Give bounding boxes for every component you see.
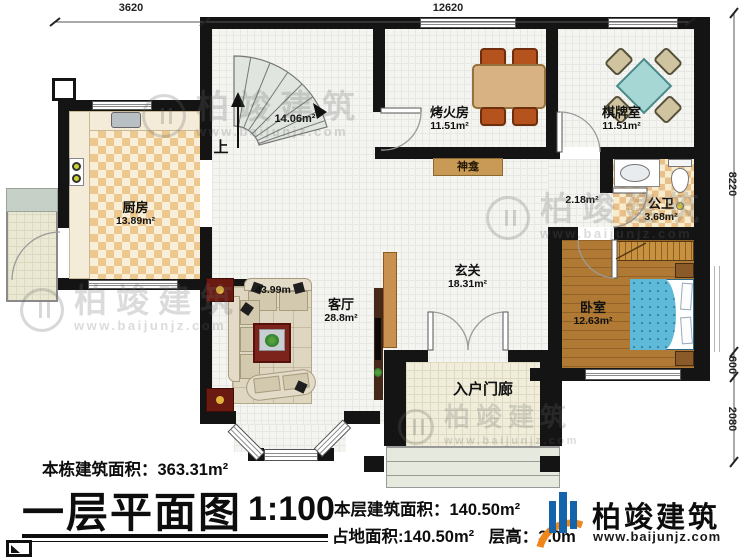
room-name: 烤火房 (402, 106, 497, 121)
table-plant (265, 334, 279, 347)
room-area: 11.51m² (402, 121, 497, 133)
window-fireroom-top (420, 18, 516, 28)
label-entry-porch: 入户门廊 (428, 382, 538, 399)
bay-pillar-bottomright (318, 448, 334, 461)
dining-chair (512, 107, 538, 126)
plan-title: 一层平面图 (22, 479, 242, 540)
nightstand (675, 351, 694, 366)
wall-fireroom-left (373, 17, 385, 112)
dim-top-left: 3620 (108, 2, 154, 14)
toilet-tank (668, 159, 692, 167)
building-total-area: 本栋建筑面积：363.31m² (42, 456, 228, 480)
sill-line (714, 266, 715, 352)
label-chess-room: 棋牌室 11.51m² (574, 106, 669, 132)
floor-area-text: 本层建筑面积：140.50m² (334, 496, 520, 520)
sill-line (719, 266, 720, 352)
stove-burner (72, 174, 81, 183)
window-kitchen-bottom (88, 280, 178, 289)
sofa-back-left (228, 296, 240, 382)
entry-steps (386, 446, 560, 488)
kitchen-counter-left (69, 111, 90, 279)
room-area: 11.51m² (574, 121, 669, 133)
room-name: 入户门廊 (428, 382, 538, 399)
wall-fire-chess-divider (546, 29, 558, 147)
sofa-cushion (253, 375, 281, 393)
dim-right-8220: 8220 (726, 164, 738, 204)
plan-scale: 1:100 (248, 490, 335, 529)
nightstand (675, 263, 694, 278)
wall-chess-bottom (600, 147, 694, 159)
bed-duvet (630, 279, 678, 350)
dim-top-right: 12620 (420, 2, 476, 14)
label-living-room: 客厅 28.8m² (295, 298, 387, 324)
kitchen-sink (111, 112, 141, 128)
stair-direction: 上 (206, 140, 236, 157)
room-area: 12.63m² (560, 316, 626, 328)
porch-pillar-left (384, 350, 406, 446)
wall-bath-left (600, 147, 613, 193)
room-area: 13.89m² (88, 216, 183, 228)
floor-plan-canvas: 厨房 13.89m² 14.06m² 上 烤火房 11.51m² 棋牌室 11.… (0, 0, 750, 560)
cabinet-knob (216, 396, 224, 404)
floor-entry-porch (406, 362, 540, 446)
room-name: 客厅 (295, 298, 387, 313)
room-name: 公卫 (622, 197, 700, 212)
brand-url: www.baijunjz.com (593, 529, 721, 544)
label-shrine: 神龛 (433, 161, 503, 173)
north-triangle (11, 545, 20, 553)
wardrobe (612, 241, 694, 261)
label-kitchen: 厨房 13.89m² (88, 201, 183, 227)
label-bedroom: 卧室 12.63m² (560, 301, 626, 327)
dim-value: 600 (726, 356, 738, 374)
label-hallway: 2.18m² (552, 195, 612, 207)
bedroom-doorway (578, 227, 614, 240)
porch-pillar-right (540, 350, 562, 446)
dim-value: 12620 (433, 2, 464, 14)
room-name: 卧室 (560, 301, 626, 316)
window-chess-top (608, 18, 678, 28)
logo-bar (549, 501, 556, 533)
bed-pillow (680, 317, 693, 345)
bay-pillar-bottomleft (248, 448, 264, 461)
north-corner-box (6, 540, 32, 557)
room-area: 2.18m² (552, 195, 612, 207)
dim-value: 3620 (119, 2, 143, 14)
bay-pillar-topleft (200, 411, 236, 424)
room-name: 玄关 (420, 264, 515, 279)
room-area: 14.06m² (262, 113, 328, 125)
label-stair-area: 14.06m² (262, 113, 328, 125)
wall-kitchen-right-lower (200, 227, 212, 279)
flue-box (52, 78, 76, 101)
extra-measure: 43.99m (238, 285, 308, 297)
decor-plant (374, 368, 382, 377)
window-bay-bottom (264, 449, 318, 461)
wall-stairhall-left (200, 17, 212, 111)
bed-pillow (680, 283, 693, 311)
brand-logo-icon (534, 487, 588, 551)
room-area: 3.68m² (622, 212, 700, 224)
dim-right-600: 600 (726, 347, 738, 383)
shrine-text: 神龛 (433, 161, 503, 173)
title-underline (22, 534, 328, 538)
label-fire-room: 烤火房 11.51m² (402, 106, 497, 132)
logo-bar (559, 492, 567, 533)
land-area: 占地面积:140.50m² (332, 528, 474, 546)
wall-bedroom-top (548, 227, 694, 240)
label-foyer: 玄关 18.31m² (420, 264, 515, 290)
step-pier-right (540, 456, 560, 472)
window-kitchen-top (92, 101, 152, 110)
tv-screen (375, 318, 381, 360)
logo-bar (570, 501, 577, 529)
dim-value: 2080 (726, 407, 738, 431)
step-pier-left (364, 456, 384, 472)
dim-value: 8220 (726, 172, 738, 196)
room-name: 厨房 (88, 201, 183, 216)
room-area: 28.8m² (295, 313, 387, 325)
side-porch-step (6, 188, 58, 212)
window-bedroom-bottom (585, 369, 681, 380)
room-name: 棋牌室 (574, 106, 669, 121)
kitchen-porch-doorway (58, 228, 69, 278)
stove-burner (72, 162, 81, 171)
label-stair-up: 上 (206, 140, 236, 157)
title-underline-thin (22, 541, 328, 542)
dining-table (472, 64, 546, 109)
label-bathroom: 公卫 3.68m² (622, 197, 700, 223)
bath-sink (620, 164, 650, 182)
cabinet-knob (216, 286, 224, 294)
label-living-extra: 43.99m (238, 285, 308, 297)
dim-right-2080: 2080 (726, 399, 738, 439)
room-area: 18.31m² (420, 279, 515, 291)
bay-pillar-topright (344, 411, 380, 424)
